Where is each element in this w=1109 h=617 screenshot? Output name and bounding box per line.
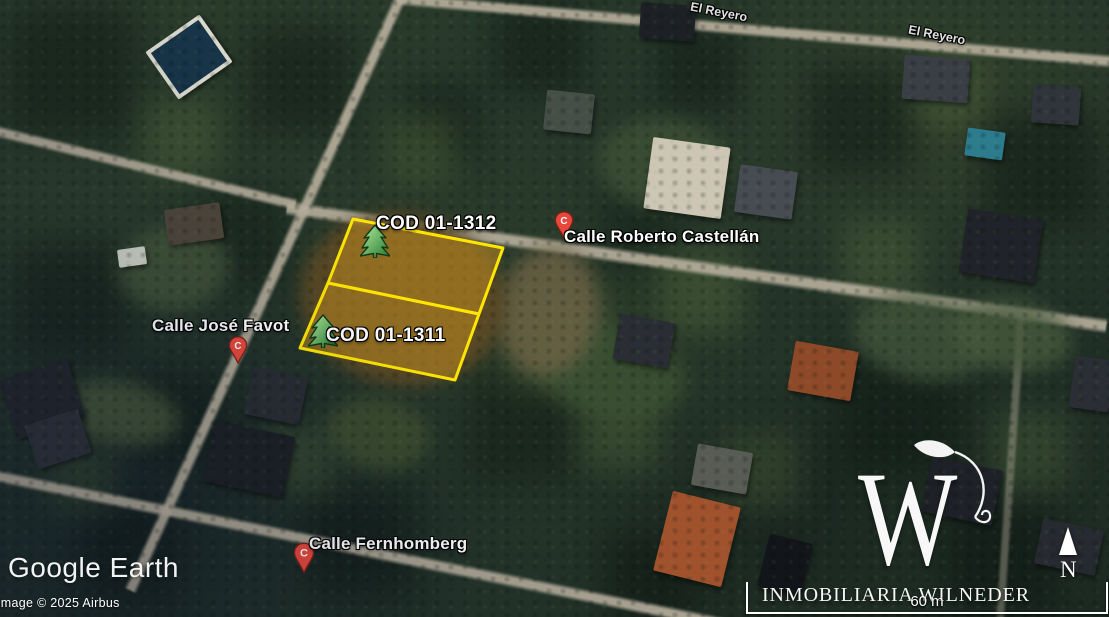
north-arrow-icon[interactable]: [1059, 527, 1077, 555]
street-label-favot[interactable]: Calle José Favot: [152, 316, 289, 336]
google-earth-viewport: C C C COD 01-1312 COD 01-1311 Calle Robe…: [0, 0, 1109, 617]
parcel-label-1311[interactable]: COD 01-1311: [326, 325, 445, 347]
scale-bar-label: 60 m: [910, 593, 943, 610]
pin-letter: C: [234, 341, 241, 352]
street-label-fernhomberg[interactable]: Calle Fernhomberg: [309, 534, 467, 554]
parcel-label-1312[interactable]: COD 01-1312: [376, 213, 497, 235]
pin-letter: C: [300, 548, 308, 560]
street-label-castellan[interactable]: Calle Roberto Castellán: [564, 227, 759, 247]
compass-north-label[interactable]: N: [1060, 557, 1077, 583]
imagery-attribution: Image © 2025 Airbus: [0, 596, 120, 610]
pin-letter: C: [560, 216, 567, 227]
google-earth-logo: Google Earth: [8, 552, 179, 584]
watermark-flourish-icon: [895, 432, 995, 524]
scale-bar: 60 m: [746, 582, 1108, 614]
placemark-pin-favot[interactable]: C: [228, 336, 248, 364]
